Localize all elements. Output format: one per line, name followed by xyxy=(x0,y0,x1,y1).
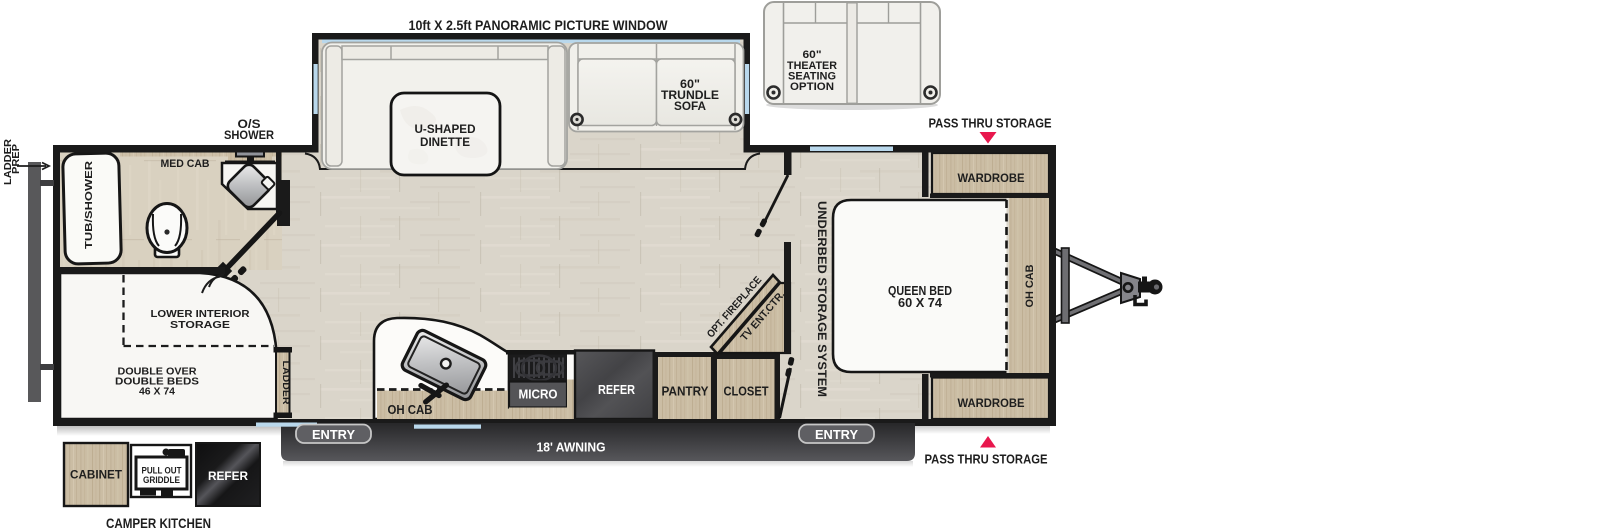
svg-text:ENTRY: ENTRY xyxy=(815,428,859,442)
svg-text:MED CAB: MED CAB xyxy=(161,158,210,170)
svg-text:10ft X 2.5ft PANORAMIC PICTURE: 10ft X 2.5ft PANORAMIC PICTURE WINDOW xyxy=(409,17,669,33)
svg-text:DINETTE: DINETTE xyxy=(420,135,470,149)
svg-text:PASS THRU STORAGE: PASS THRU STORAGE xyxy=(925,453,1048,467)
svg-text:ENTRY: ENTRY xyxy=(312,428,356,442)
svg-text:GRIDDLE: GRIDDLE xyxy=(143,475,180,485)
svg-text:18' AWNING: 18' AWNING xyxy=(537,440,606,455)
svg-text:LADDER: LADDER xyxy=(280,361,291,405)
svg-text:STORAGE: STORAGE xyxy=(170,319,230,331)
svg-text:46 X 74: 46 X 74 xyxy=(139,386,175,398)
svg-text:PASS THRU STORAGE: PASS THRU STORAGE xyxy=(929,117,1052,131)
svg-text:CAMPER KITCHEN: CAMPER KITCHEN xyxy=(106,516,211,529)
svg-text:SHOWER: SHOWER xyxy=(224,130,275,142)
svg-text:PULL OUT: PULL OUT xyxy=(142,466,182,476)
svg-text:SOFA: SOFA xyxy=(674,101,706,113)
svg-text:CLOSET: CLOSET xyxy=(724,385,769,399)
svg-text:MICRO: MICRO xyxy=(519,388,558,402)
svg-text:60 X 74: 60 X 74 xyxy=(898,296,942,310)
svg-text:OH CAB: OH CAB xyxy=(388,403,433,417)
svg-text:OH CAB: OH CAB xyxy=(1024,264,1036,307)
svg-text:PANTRY: PANTRY xyxy=(662,385,710,399)
svg-text:OPTION: OPTION xyxy=(790,81,834,93)
svg-text:WARDROBE: WARDROBE xyxy=(958,171,1025,185)
svg-text:UNDERBED STORAGE SYSTEM: UNDERBED STORAGE SYSTEM xyxy=(815,201,829,397)
svg-text:WARDROBE: WARDROBE xyxy=(958,396,1025,410)
svg-text:PREP: PREP xyxy=(11,144,22,174)
svg-text:REFER: REFER xyxy=(598,382,636,397)
svg-text:U-SHAPED: U-SHAPED xyxy=(415,122,476,136)
svg-text:TUB/SHOWER: TUB/SHOWER xyxy=(83,160,95,249)
svg-text:REFER: REFER xyxy=(208,469,248,483)
svg-text:CABINET: CABINET xyxy=(70,470,122,482)
